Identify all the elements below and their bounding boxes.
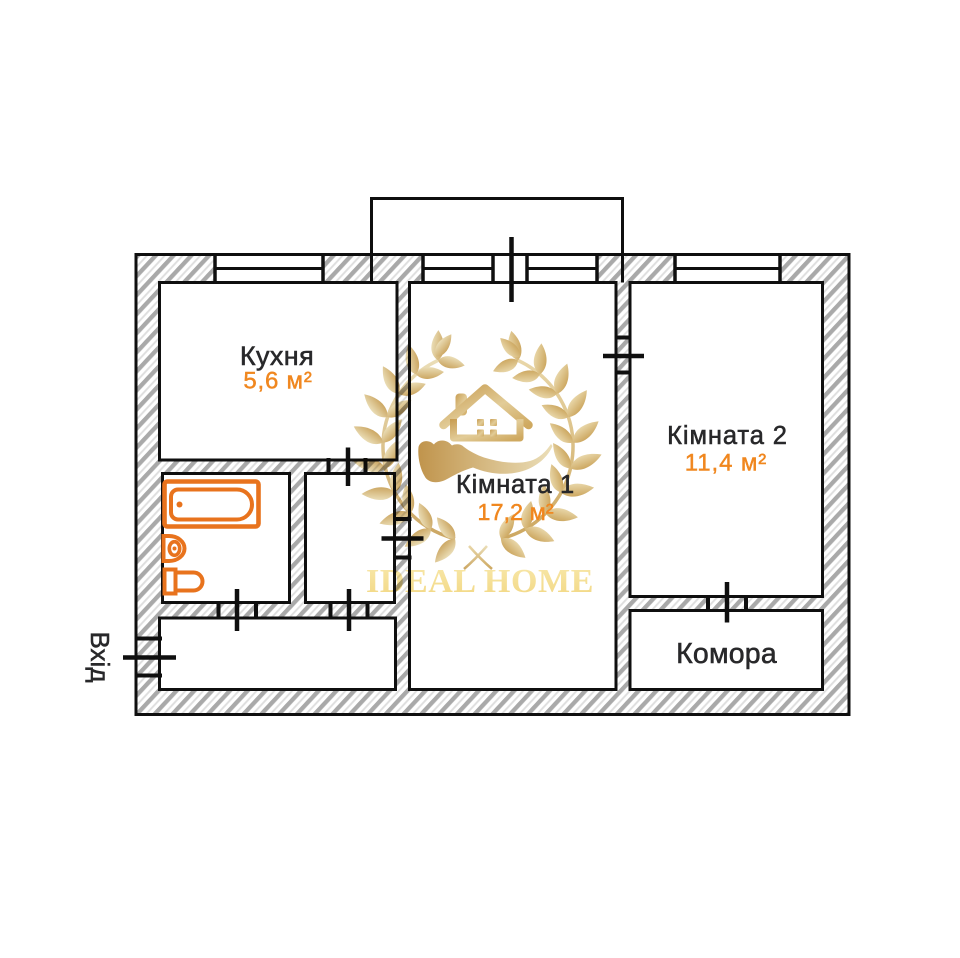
svg-text:17,2 м²: 17,2 м²: [477, 499, 553, 525]
svg-text:Кімната 2: Кімната 2: [667, 422, 788, 450]
svg-text:Комора: Комора: [676, 638, 777, 670]
svg-text:Кухня: Кухня: [240, 341, 314, 371]
svg-text:11,4 м²: 11,4 м²: [685, 450, 767, 477]
svg-text:Вхід: Вхід: [85, 632, 115, 683]
svg-text:Кімната 1: Кімната 1: [456, 471, 575, 499]
svg-text:5,6 м²: 5,6 м²: [243, 368, 312, 395]
svg-text:IDEAL HOME: IDEAL HOME: [366, 563, 594, 600]
